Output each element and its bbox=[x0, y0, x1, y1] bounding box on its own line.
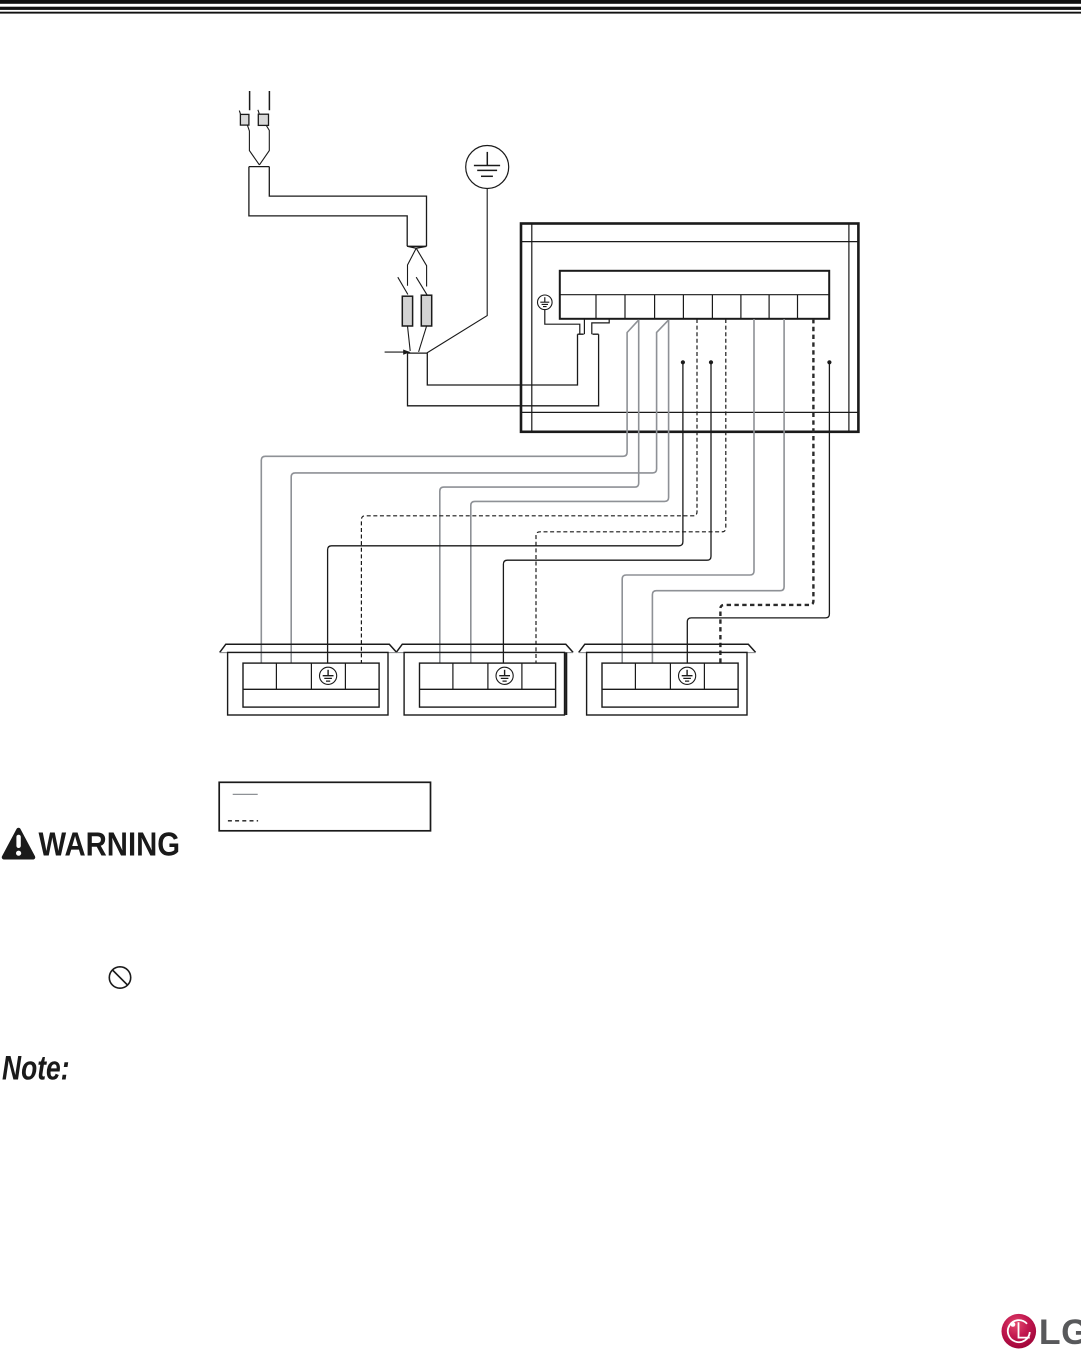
svg-text:WARNING: WARNING bbox=[39, 827, 181, 864]
svg-text:Note:: Note: bbox=[2, 1049, 70, 1087]
svg-text:LG: LG bbox=[1039, 1312, 1081, 1352]
